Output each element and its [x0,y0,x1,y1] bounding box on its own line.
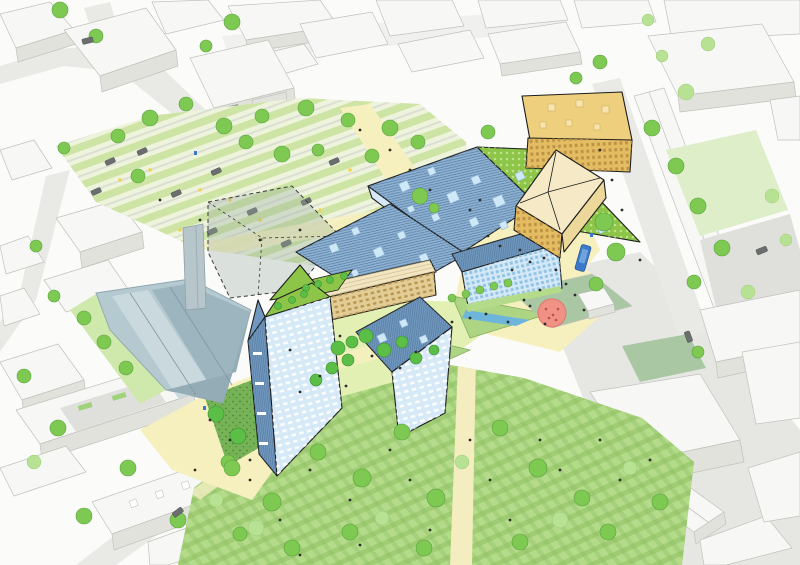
chimney-tower [183,224,206,310]
blue-figure [590,233,593,237]
masterplan-svg: Aerial axonometric illustration of an ur… [0,0,800,565]
playground-circle [538,299,566,327]
masterplan-illustration: Aerial axonometric illustration of an ur… [0,0,800,565]
blue-figure [194,151,197,155]
blue-figure [203,406,206,410]
